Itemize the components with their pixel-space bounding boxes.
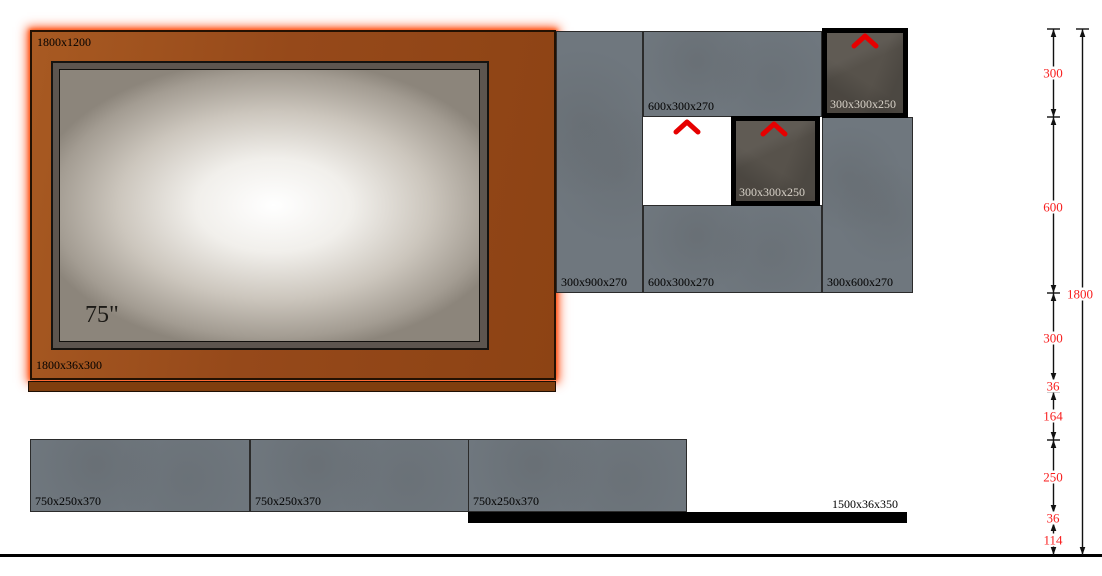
- cabinet-top-middle: 600x300x270: [643, 31, 822, 117]
- cabinet-bottom-middle: 600x300x270: [643, 205, 822, 293]
- backdrop-shelf-label: 1800x36x300: [36, 358, 102, 372]
- backdrop-size-label: 1800x1200: [37, 35, 91, 49]
- cabinet-label: 600x300x270: [648, 275, 714, 289]
- backdrop-shelf-strip: [28, 381, 556, 392]
- dim-label: 600: [1042, 201, 1064, 214]
- cabinet-label: 300x600x270: [827, 275, 893, 289]
- cabinet-column-left: 300x900x270: [556, 31, 643, 293]
- vent-arrow-icon: [759, 121, 789, 137]
- vent-arrow-icon: [672, 119, 702, 135]
- elevation-drawing: 1800x1200 1800x36x300 75" 300x900x270 60…: [0, 0, 1102, 576]
- tv-size-label: 75": [85, 303, 119, 327]
- cabinet-label: 300x900x270: [561, 275, 627, 289]
- dim-label-overall: 1800: [1066, 288, 1094, 301]
- black-ledge-label: 1500x36x350: [832, 497, 898, 511]
- dim-label: 250: [1042, 471, 1064, 484]
- cabinet-column-right: 300x600x270: [822, 117, 913, 293]
- dim-label: 36: [1046, 512, 1061, 525]
- dim-label: 164: [1042, 410, 1064, 423]
- dim-label: 36: [1046, 380, 1061, 393]
- tv-screen: 75": [59, 69, 480, 342]
- floating-shelf: 750x250x370: [468, 439, 687, 512]
- black-ledge-bar: [468, 512, 907, 523]
- dim-label: 300: [1042, 332, 1064, 345]
- shelf-label: 750x250x370: [255, 494, 321, 508]
- cabinet-label: 600x300x270: [648, 99, 714, 113]
- shelf-label: 750x250x370: [473, 494, 539, 508]
- dim-label: 114: [1042, 534, 1063, 547]
- floating-shelf: 750x250x370: [30, 439, 250, 512]
- dim-label: 300: [1042, 67, 1064, 80]
- floor-line: [0, 554, 1102, 557]
- shelf-label: 750x250x370: [35, 494, 101, 508]
- dark-box-label: 300x300x250: [830, 97, 896, 111]
- vent-arrow-icon: [850, 33, 880, 49]
- dark-box-label: 300x300x250: [739, 185, 805, 199]
- floating-shelf: 750x250x370: [250, 439, 470, 512]
